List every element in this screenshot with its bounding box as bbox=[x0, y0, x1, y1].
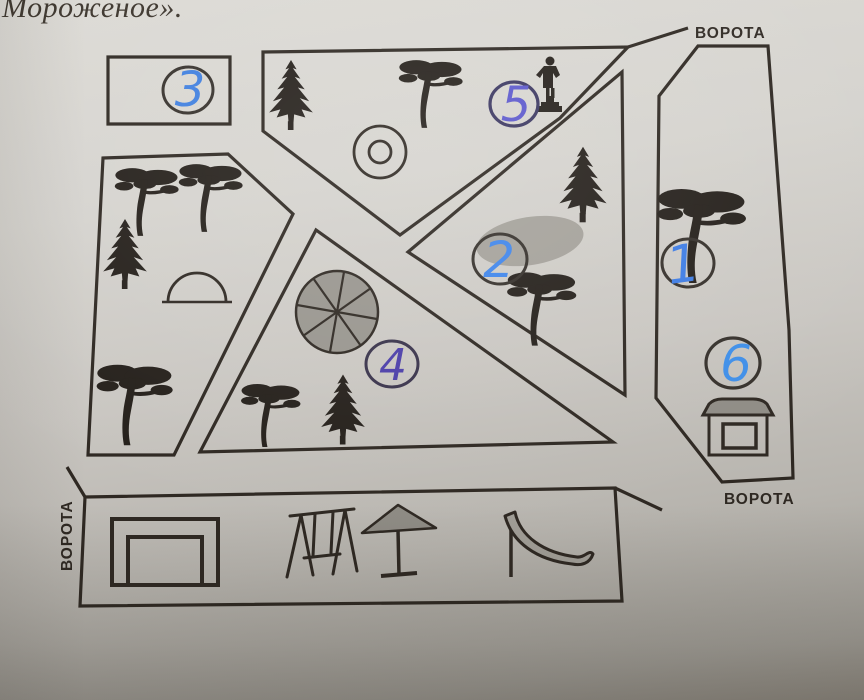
area-number-2: 2 bbox=[483, 231, 515, 289]
pen-markers: 3 5 2 4 1 6 bbox=[161, 62, 760, 393]
flowerbed-icon bbox=[296, 271, 378, 353]
marker-area-5: 5 bbox=[490, 77, 538, 133]
fir-tree-icon bbox=[559, 147, 606, 223]
gate-path-bottom-right bbox=[615, 488, 662, 510]
fountain-icon bbox=[354, 126, 406, 178]
gate-path-top-right bbox=[628, 28, 688, 47]
gate-path-left bbox=[67, 467, 85, 497]
gate-label-bottom-right: ВОРОТА bbox=[724, 491, 795, 508]
region-left-grove-outline bbox=[88, 154, 293, 455]
deciduous-tree-icon bbox=[399, 60, 463, 128]
marker-area-3: 3 bbox=[161, 62, 216, 118]
gate-label-top-right: ВОРОТА bbox=[695, 25, 766, 42]
marker-area-1: 1 bbox=[660, 233, 715, 297]
kiosk-icon bbox=[703, 399, 773, 455]
slide-icon bbox=[505, 512, 593, 577]
statue-icon bbox=[536, 57, 562, 113]
umbrella-icon bbox=[362, 505, 436, 576]
deciduous-tree-icon bbox=[507, 272, 576, 345]
area-number-1: 1 bbox=[663, 233, 704, 297]
textbook-page-photo: Мороженое». bbox=[0, 0, 864, 700]
gate-label-left: ВОРОТА bbox=[59, 500, 76, 571]
area-number-5: 5 bbox=[501, 77, 532, 133]
swing-icon bbox=[287, 509, 357, 577]
marker-area-6: 6 bbox=[706, 335, 760, 393]
fir-tree-icon bbox=[269, 60, 313, 130]
deciduous-tree-icon bbox=[179, 164, 243, 232]
area-number-4: 4 bbox=[379, 340, 407, 391]
marker-area-4: 4 bbox=[366, 340, 418, 391]
deciduous-tree-icon bbox=[97, 365, 173, 446]
fir-tree-icon bbox=[321, 375, 365, 445]
deciduous-tree-icon bbox=[241, 384, 300, 447]
sandbox-icon bbox=[112, 519, 218, 585]
dome-icon bbox=[162, 273, 232, 302]
tree-icons bbox=[97, 60, 746, 447]
area-number-6: 6 bbox=[720, 335, 752, 393]
area-number-3: 3 bbox=[175, 62, 206, 118]
park-map: 3 5 2 4 1 6 ВОРОТА bbox=[0, 0, 864, 700]
